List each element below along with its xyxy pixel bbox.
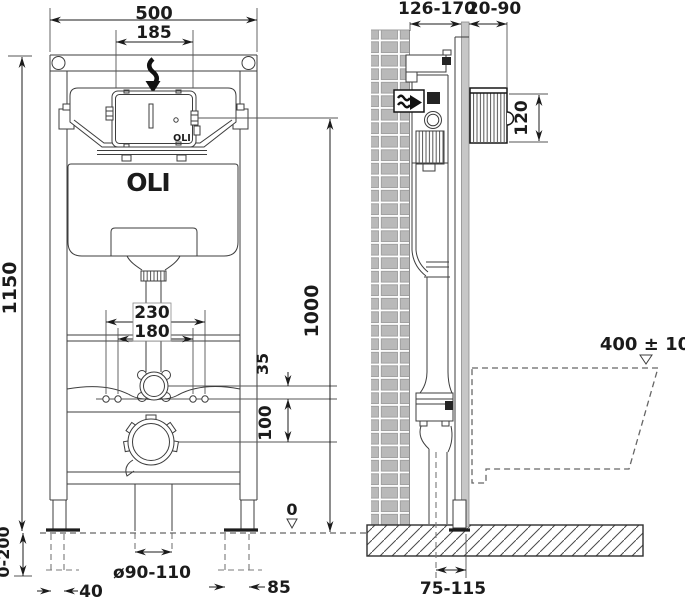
dim-drain-diameter: ø90-110 xyxy=(113,552,191,583)
dim-foot-left: 40 xyxy=(37,582,103,600)
svg-text:120: 120 xyxy=(512,100,532,136)
drain-pipe xyxy=(135,484,172,550)
svg-text:500: 500 xyxy=(135,3,173,24)
flush-pipe-coupling xyxy=(141,271,166,281)
dim-plate-height: 120 xyxy=(509,94,548,142)
front-view: OLI OLI xyxy=(0,3,367,600)
dim-drain-offset: 100 xyxy=(256,399,288,442)
wall-bracket xyxy=(406,50,451,82)
svg-text:1150: 1150 xyxy=(0,262,21,315)
access-box-latch xyxy=(191,111,198,125)
flush-bend xyxy=(138,371,171,402)
flush-plate-housing xyxy=(470,88,513,143)
clamp-lever xyxy=(126,460,134,476)
svg-text:126-170: 126-170 xyxy=(398,0,476,19)
floor-slab xyxy=(367,525,643,556)
svg-text:20-90: 20-90 xyxy=(467,0,522,19)
svg-text:1000: 1000 xyxy=(301,285,323,338)
svg-text:0-200: 0-200 xyxy=(0,526,13,577)
svg-text:185: 185 xyxy=(136,23,172,43)
frame-hole-left xyxy=(52,57,65,70)
access-box-clip-left xyxy=(106,107,113,120)
frame-hole-right xyxy=(242,57,255,70)
drain-clamp xyxy=(124,415,179,476)
svg-text:75-115: 75-115 xyxy=(420,579,486,599)
svg-text:ø90-110: ø90-110 xyxy=(113,563,191,583)
svg-text:400 ± 10: 400 ± 10 xyxy=(600,334,685,355)
dim-panel-height: 1000 xyxy=(301,119,330,532)
access-box: OLI xyxy=(106,90,200,147)
svg-text:180: 180 xyxy=(134,322,170,342)
frame-rail-side xyxy=(455,22,469,527)
dim-bowl-height: 400 ± 10 xyxy=(600,334,685,364)
dim-frame-height: 1150 xyxy=(0,56,32,531)
svg-text:40: 40 xyxy=(79,582,103,600)
toilet-bowl-outline xyxy=(472,368,658,483)
svg-text:0: 0 xyxy=(286,500,297,519)
svg-text:100: 100 xyxy=(256,405,276,441)
water-inlet-icon xyxy=(394,90,424,112)
dim-bend-offset: 35 xyxy=(253,353,288,386)
dim-leg-adjustment: 0-200 xyxy=(0,526,32,577)
logo-main: OLI xyxy=(126,168,169,197)
cistern-side xyxy=(412,75,450,372)
svg-text:230: 230 xyxy=(134,303,170,323)
side-view: 126-170 20-90 120 400 ± 10 75-115 xyxy=(367,0,685,599)
floor-datum-marker: 0 xyxy=(286,500,297,528)
dim-foot-right: 85 xyxy=(209,578,291,598)
logo-access-box: OLI xyxy=(173,133,191,144)
adjustable-feet xyxy=(46,500,262,570)
svg-text:85: 85 xyxy=(267,578,291,598)
installation-drawing: OLI OLI xyxy=(0,0,685,600)
svg-text:35: 35 xyxy=(253,353,272,375)
